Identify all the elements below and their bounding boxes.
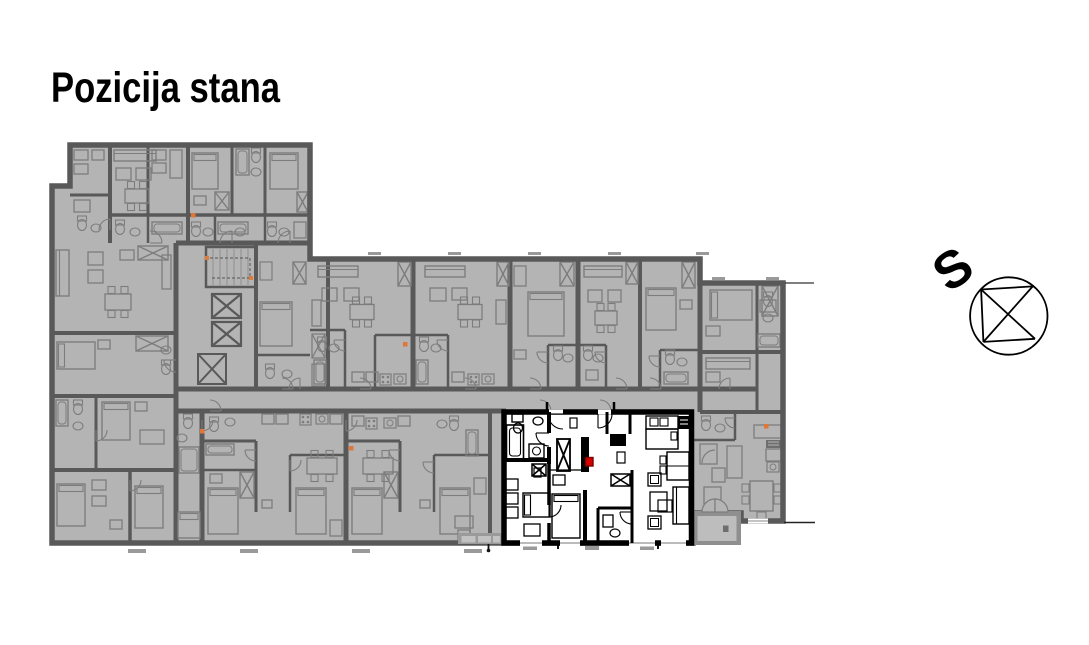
svg-text:Pozicija stana: Pozicija stana [51,64,281,112]
